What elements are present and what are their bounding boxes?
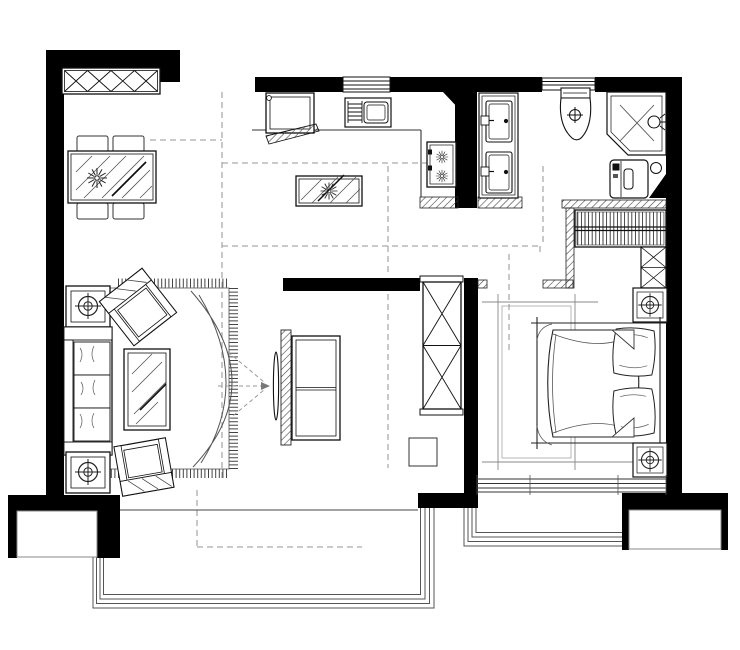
washing-machine [610, 160, 648, 198]
arrow-head-icon [261, 382, 270, 390]
hall-stool [409, 438, 437, 466]
sideboard-x-cabinet [62, 68, 160, 94]
wall-kitchen-bath-divider [455, 92, 477, 208]
tv-cabinet [292, 336, 340, 440]
living-room [64, 268, 340, 496]
bedroom-x-cabinet [641, 247, 666, 288]
drainboard-icon [348, 101, 362, 123]
kitchen [252, 93, 456, 206]
sofa-cushion [74, 342, 110, 375]
ac-platform-east-right [721, 510, 728, 550]
sofa-cushion [74, 375, 110, 408]
hallway [409, 276, 463, 466]
fridge-hinge [267, 96, 272, 101]
bathroom [479, 88, 666, 198]
toilet [560, 88, 590, 140]
dining-area [62, 68, 160, 219]
tv-feature-wall-panel [281, 330, 291, 445]
cooktop-2-burner [427, 142, 456, 187]
bedroom-south-window [477, 475, 666, 495]
coffee-table [124, 349, 170, 430]
ac-platform-east-left [622, 510, 629, 550]
ac-platform-west-right [97, 511, 120, 558]
ac-platform-west-void [17, 511, 97, 557]
faucet-icon [481, 167, 489, 176]
wall-south-bar [418, 493, 477, 508]
wall-living-hall [283, 278, 420, 291]
washer-door [624, 169, 633, 189]
window-over-kitchen-sink [343, 77, 390, 92]
armchair-south [114, 438, 174, 496]
tv-icon [273, 352, 278, 420]
island-table [296, 175, 362, 206]
shower-head-icon [648, 116, 660, 128]
double-bed [531, 317, 667, 449]
sofa-armrest [64, 327, 112, 340]
bedroom-balcony-railing [464, 508, 628, 546]
sofa [64, 327, 112, 455]
double-sink-vanity [479, 93, 518, 198]
sofa-cushion [74, 408, 110, 441]
faucet-icon [481, 116, 489, 125]
corner-shower [607, 92, 666, 155]
wall-north-a [255, 77, 343, 92]
kitchen-sink [345, 98, 391, 127]
wall-hall-bedroom [464, 278, 478, 508]
wall-west [46, 50, 64, 511]
ac-platform-west-top [8, 495, 120, 511]
wall-east [666, 77, 682, 510]
ac-platform-east-top [622, 493, 728, 510]
wardrobe-hanging-rail [575, 210, 666, 247]
tv-area [218, 330, 340, 445]
hall-x-cabinet [420, 276, 463, 415]
dining-table [68, 151, 156, 203]
sofa-back [64, 340, 73, 442]
ac-platform-east-void [629, 510, 721, 549]
living-room-balcony-railing [93, 508, 434, 608]
refrigerator [266, 93, 319, 144]
floor-drain-icon [651, 163, 662, 174]
floor-plan-canvas [0, 0, 740, 650]
ac-platform-west-left [8, 511, 17, 558]
corner-triangle-shelf [649, 174, 666, 198]
rug-arc-motif [191, 291, 232, 467]
wall-north-b [390, 77, 542, 92]
